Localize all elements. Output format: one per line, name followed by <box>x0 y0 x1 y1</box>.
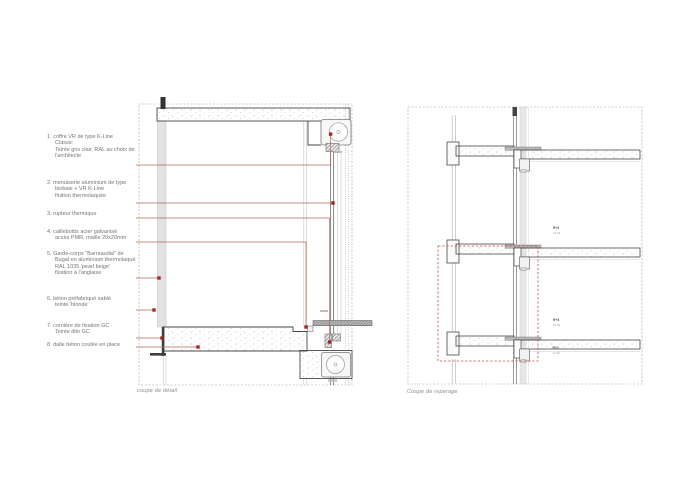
legend-text: caillebottis acier galvaniséaccès PMR, m… <box>53 229 150 242</box>
grating-support <box>308 326 314 332</box>
legend-item-2: 2. menuiserie aluminium de typebiobaie +… <box>47 180 150 199</box>
legend-item-4: 4. caillebottis acier galvaniséaccès PMR… <box>47 229 150 242</box>
marker-6 <box>152 308 155 311</box>
vr-box <box>520 349 530 361</box>
marker-2 <box>331 201 334 204</box>
floor-labels: R+4 12.44 R+4 12.34 R+3 12.33 <box>553 226 561 355</box>
floor-label-name: R+3 <box>553 346 559 350</box>
legend-item-3: 3. rupteur thermique <box>47 211 150 217</box>
legend-text: dalle béton coulée en place <box>53 342 120 348</box>
marker-3 <box>328 340 331 343</box>
slab-edge <box>162 327 165 356</box>
lintel-step <box>308 121 321 145</box>
legend-number: 8. <box>47 342 52 348</box>
caption-detail: coupe de détail <box>137 388 177 394</box>
legend-text: rupteur thermique <box>53 211 96 217</box>
vr-box <box>520 159 530 171</box>
legend-number: 4. <box>47 229 52 235</box>
interior-band <box>514 248 640 257</box>
legend-number: 1. <box>47 134 52 140</box>
floor-label-level: 12.34 <box>553 323 561 327</box>
legend-number: 5. <box>47 251 52 257</box>
balcony-slab <box>150 327 307 356</box>
legend-number: 6. <box>47 296 52 302</box>
marker-8 <box>196 345 199 348</box>
floor-label-name: R+4 <box>553 226 559 230</box>
window-head-frame <box>326 144 339 152</box>
floor-slab-3 <box>447 332 640 363</box>
legend-text: coffre VR de type K-LineClassicTeinte gr… <box>53 134 150 160</box>
vr-box-head <box>321 120 351 152</box>
legend-text: menuiserie aluminium de typebiobaie + VR… <box>53 180 150 199</box>
grating <box>313 321 372 326</box>
legend-text: béton préfabriqué sabléteinte 'blonde' <box>53 296 150 309</box>
floor-label-level: 12.44 <box>553 231 561 235</box>
marker-5 <box>157 276 160 279</box>
location-section-panel: R+4 12.44 R+4 12.34 R+3 12.33 <box>408 107 642 384</box>
marker-4 <box>304 325 307 328</box>
vr-box <box>520 257 530 269</box>
window-section <box>331 152 334 385</box>
slab-anchor-tick <box>161 97 166 109</box>
upper-slab <box>157 108 350 121</box>
facade-top-tick <box>513 107 518 116</box>
legend-item-6: 6. béton préfabriqué sabléteinte 'blonde… <box>47 296 150 309</box>
guardrail-elevation-strip <box>158 121 167 327</box>
detail-section-panel <box>136 97 372 385</box>
sheet: R+4 12.44 R+4 12.34 R+3 12.33 1. coffre … <box>0 0 700 495</box>
legend-item-8: 8. dalle béton coulée en place <box>47 342 150 348</box>
interior-band <box>514 340 640 349</box>
lower-slab-mass <box>300 351 352 379</box>
marker-1 <box>329 132 332 135</box>
legend-number: 3. <box>47 211 52 217</box>
floor-label-name: R+4 <box>553 318 559 322</box>
legend-text: cornière de fixation GCTeinte dito GC <box>53 323 150 336</box>
window-sill-frame <box>325 334 341 348</box>
interior-band <box>514 150 640 159</box>
floor-slab-1 <box>447 142 640 173</box>
soffit-line <box>150 353 166 356</box>
floor-label-level: 12.33 <box>553 351 561 355</box>
legend-number: 7. <box>47 323 52 329</box>
legend-item-1: 1. coffre VR de type K-LineClassicTeinte… <box>47 134 150 160</box>
caption-reperage: Coupe de repérage <box>407 389 458 395</box>
legend-item-7: 7. cornière de fixation GCTeinte dito GC <box>47 323 150 336</box>
marker-7 <box>160 336 163 339</box>
legend-item-5: 5. Garde-corps "Barreaudal" deBugal en a… <box>47 251 150 277</box>
legend-number: 2. <box>47 180 52 186</box>
architectural-drawing: R+4 12.44 R+4 12.34 R+3 12.33 <box>0 0 700 495</box>
floor-slab-2 <box>447 240 640 271</box>
legend-text: Garde-corps "Barreaudal" deBugal en alum… <box>53 251 150 277</box>
